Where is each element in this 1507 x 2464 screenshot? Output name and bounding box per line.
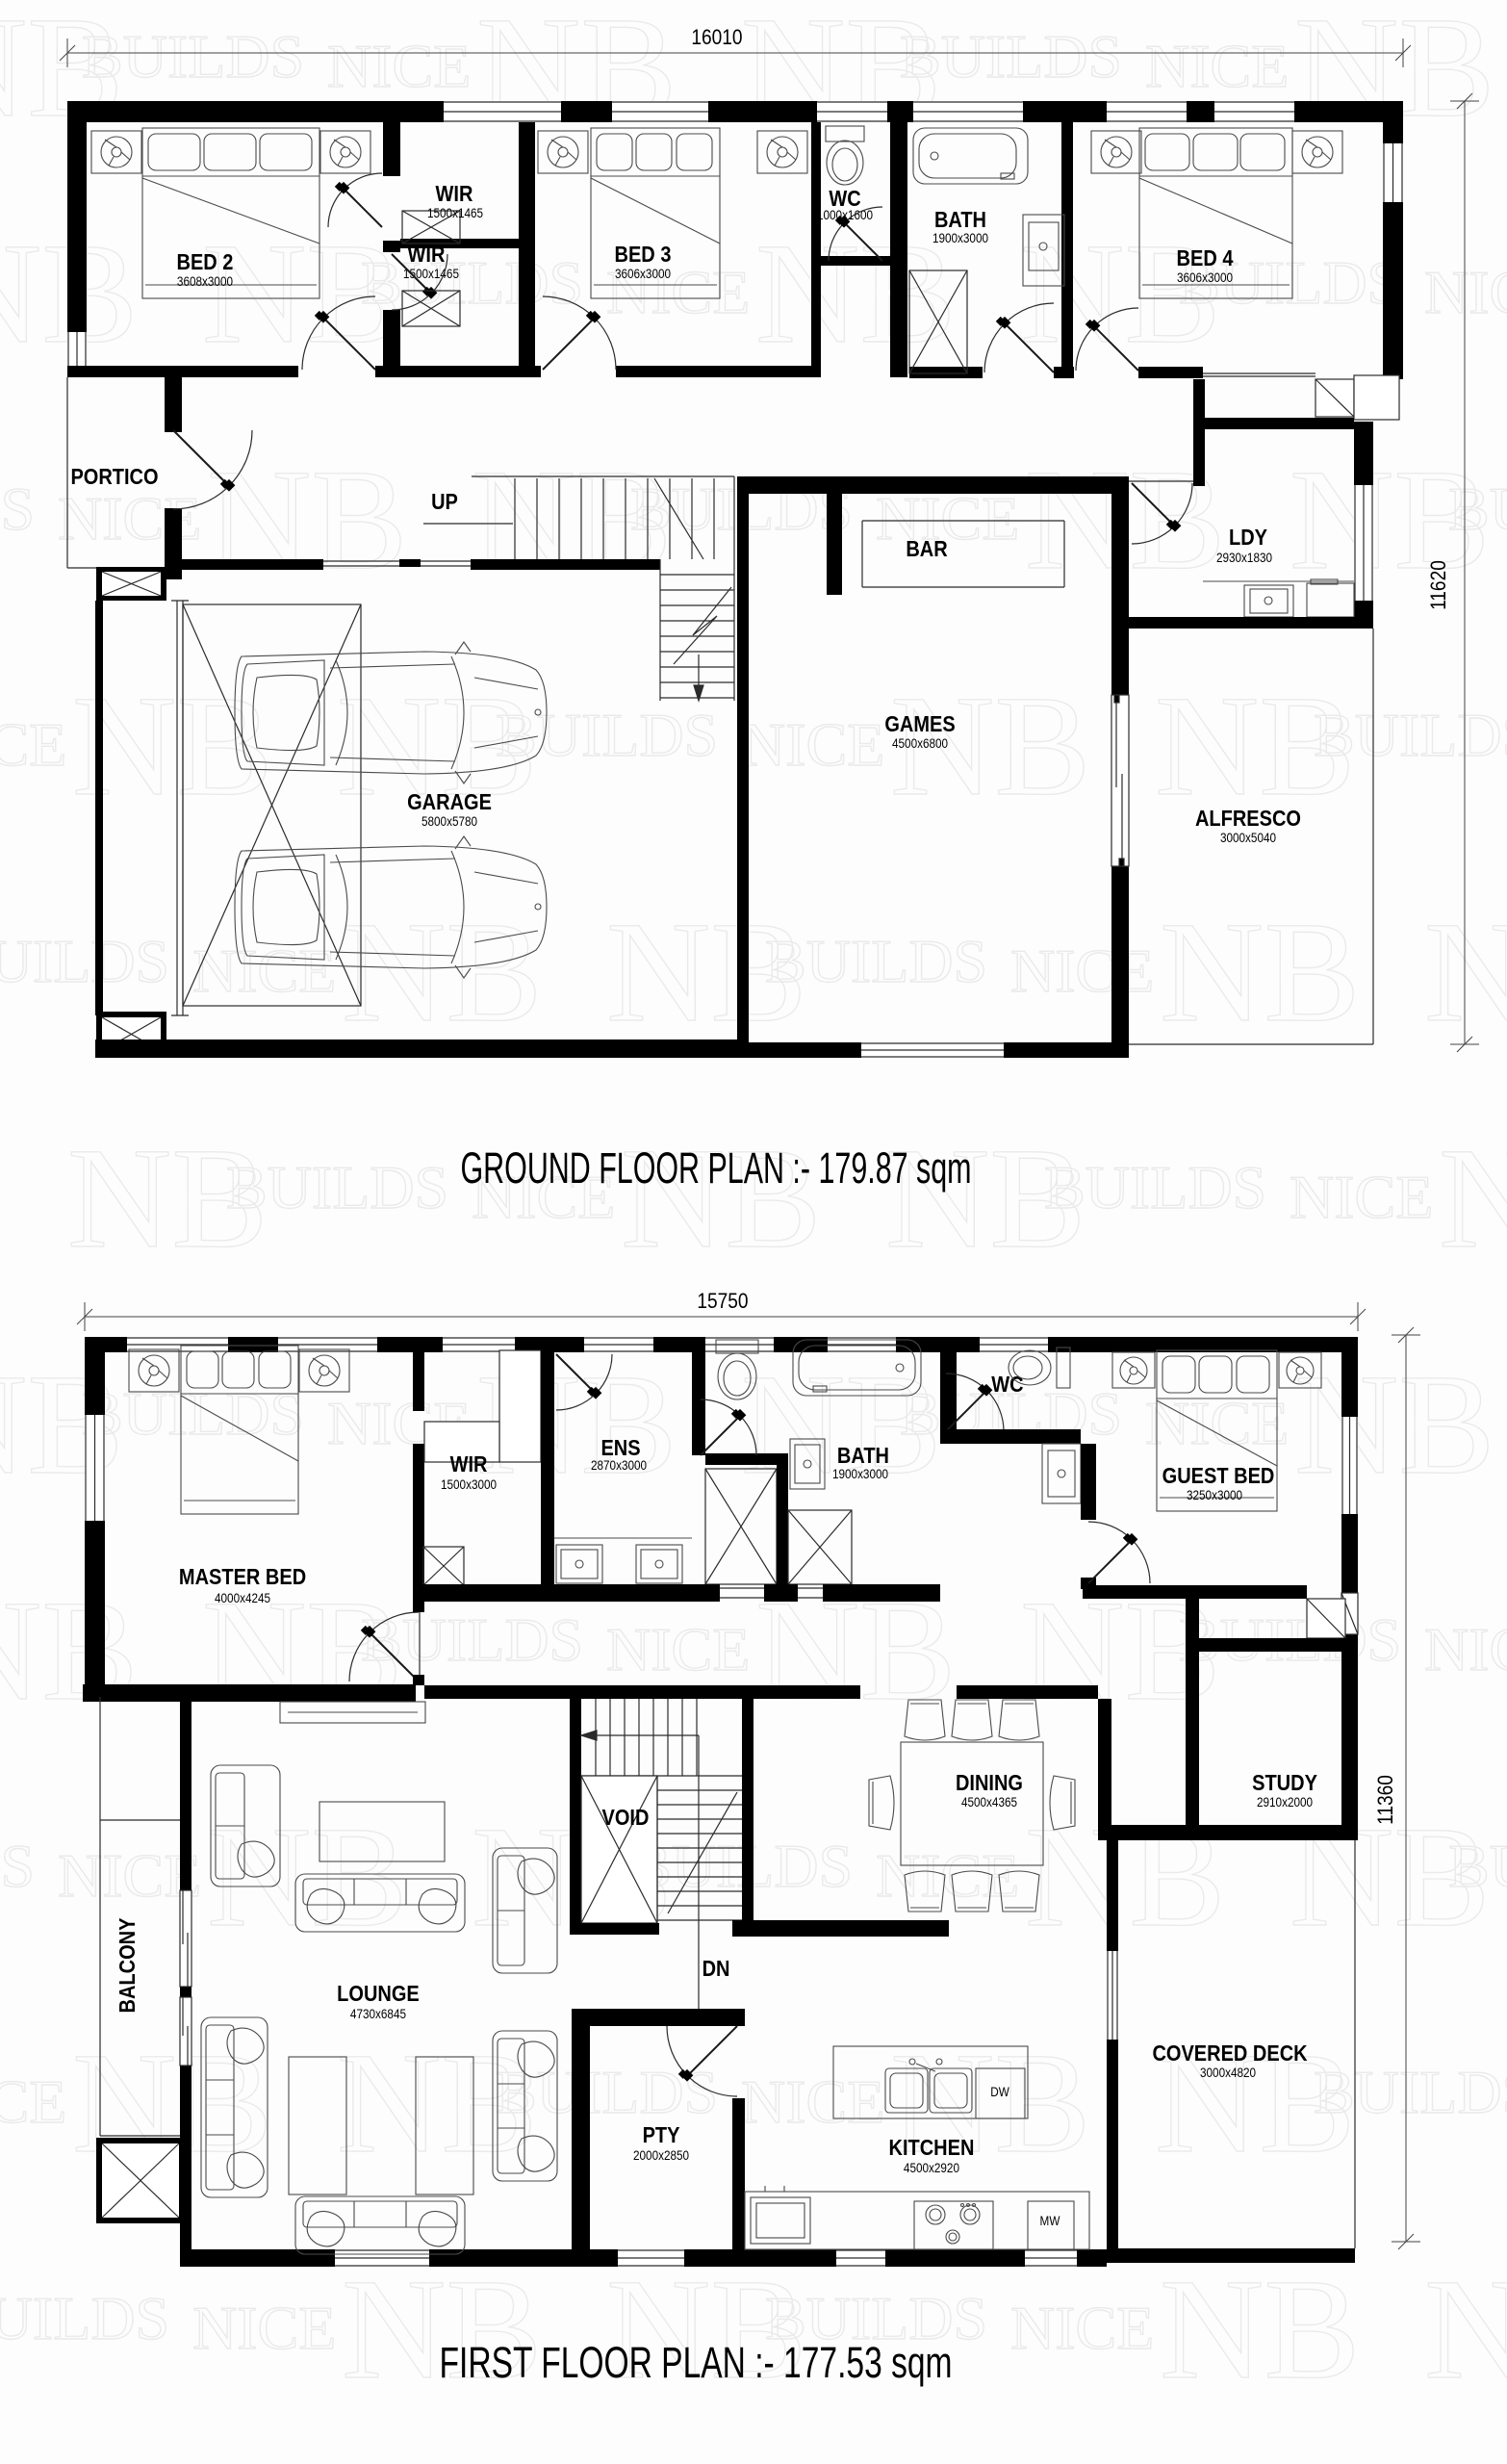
svg-text:3608x3000: 3608x3000 (177, 274, 233, 289)
svg-text:WIR: WIR (450, 1451, 488, 1477)
svg-text:WC: WC (991, 1372, 1023, 1398)
svg-text:3000x5040: 3000x5040 (1220, 831, 1276, 845)
svg-text:BALCONY: BALCONY (115, 1917, 140, 2013)
svg-text:NICE: NICE (327, 32, 471, 100)
svg-text:BUILDS: BUILDS (1448, 1832, 1507, 1900)
svg-text:NICE: NICE (192, 937, 336, 1005)
svg-text:1900x3000: 1900x3000 (932, 231, 988, 245)
svg-text:BUILDS: BUILDS (0, 475, 35, 543)
svg-text:NICE: NICE (1145, 1389, 1289, 1457)
svg-text:11620: 11620 (1427, 560, 1451, 610)
svg-text:BUILDS: BUILDS (226, 1153, 448, 1221)
svg-text:NB: NB (621, 1118, 821, 1278)
svg-text:MASTER BED: MASTER BED (179, 1564, 306, 1590)
svg-text:MW: MW (1040, 2214, 1060, 2228)
svg-text:NB: NB (207, 1797, 407, 1957)
svg-text:BUILDS: BUILDS (82, 22, 304, 90)
svg-text:2870x3000: 2870x3000 (591, 1458, 647, 1473)
svg-text:4730x6845: 4730x6845 (350, 2007, 406, 2021)
svg-text:NB: NB (1424, 2249, 1507, 2409)
svg-text:3000x4820: 3000x4820 (1200, 2066, 1256, 2080)
svg-text:BUILDS: BUILDS (1314, 2058, 1507, 2126)
svg-text:11360: 11360 (1374, 1775, 1398, 1825)
svg-text:BUILDS: BUILDS (0, 2284, 169, 2352)
svg-text:BUILDS: BUILDS (765, 927, 987, 995)
svg-text:NICE: NICE (192, 2294, 336, 2362)
svg-text:1500x1465: 1500x1465 (427, 206, 483, 220)
svg-text:NB: NB (1439, 1118, 1507, 1278)
svg-text:3606x3000: 3606x3000 (615, 267, 671, 281)
svg-text:GAMES: GAMES (884, 711, 955, 737)
svg-text:NB: NB (1160, 892, 1360, 1052)
svg-text:NICE: NICE (1010, 937, 1154, 1005)
svg-text:1500x3000: 1500x3000 (441, 1477, 497, 1492)
svg-text:KITCHEN: KITCHEN (889, 2135, 975, 2161)
svg-text:3606x3000: 3606x3000 (1177, 270, 1233, 285)
svg-text:LOUNGE: LOUNGE (337, 1981, 420, 2007)
svg-text:NICE: NICE (1290, 1163, 1433, 1231)
svg-text:BUILDS: BUILDS (900, 22, 1122, 90)
svg-text:BUILDS: BUILDS (1044, 1153, 1266, 1221)
svg-text:2910x2000: 2910x2000 (1257, 1795, 1313, 1809)
svg-text:BUILDS: BUILDS (1448, 475, 1507, 543)
svg-text:4500x2920: 4500x2920 (904, 2161, 959, 2175)
svg-text:2930x1830: 2930x1830 (1216, 551, 1272, 565)
svg-text:DW: DW (990, 2085, 1009, 2099)
svg-text:BUILDS: BUILDS (496, 2058, 718, 2126)
svg-text:FIRST FLOOR PLAN :- 177.53 sqm: FIRST FLOOR PLAN :- 177.53 sqm (440, 2338, 953, 2387)
svg-text:NICE: NICE (0, 2067, 66, 2136)
svg-text:NICE: NICE (1010, 2294, 1154, 2362)
svg-text:BATH: BATH (837, 1443, 889, 1469)
svg-text:GUEST BED: GUEST BED (1162, 1463, 1275, 1489)
svg-text:5800x5780: 5800x5780 (421, 814, 477, 829)
svg-text:BUILDS: BUILDS (1314, 701, 1507, 769)
svg-text:BED 4: BED 4 (1177, 245, 1234, 271)
svg-text:NB: NB (0, 1118, 3, 1278)
svg-text:1900x3000: 1900x3000 (832, 1467, 888, 1481)
svg-text:BUILDS: BUILDS (361, 248, 583, 317)
svg-text:2000x2850: 2000x2850 (633, 2148, 689, 2163)
svg-text:BUILDS: BUILDS (630, 1832, 853, 1900)
svg-text:4500x4365: 4500x4365 (961, 1795, 1017, 1809)
svg-text:STUDY: STUDY (1252, 1770, 1317, 1796)
svg-text:4500x6800: 4500x6800 (892, 736, 948, 751)
svg-text:BUILDS: BUILDS (82, 1379, 304, 1448)
svg-text:BED 2: BED 2 (177, 249, 234, 275)
svg-text:BAR: BAR (906, 536, 948, 562)
svg-text:15750: 15750 (697, 1290, 748, 1314)
svg-text:NICE: NICE (1424, 1615, 1507, 1683)
svg-text:NB: NB (476, 0, 677, 147)
svg-text:NB: NB (0, 1571, 138, 1731)
svg-text:NICE: NICE (876, 1841, 1019, 1910)
svg-text:16010: 16010 (691, 26, 742, 50)
svg-text:PORTICO: PORTICO (70, 464, 158, 490)
svg-text:NICE: NICE (0, 710, 66, 779)
svg-text:ALFRESCO: ALFRESCO (1195, 806, 1301, 832)
svg-text:LDY: LDY (1229, 525, 1268, 551)
svg-text:UP: UP (431, 489, 458, 515)
svg-text:NICE: NICE (741, 2067, 884, 2136)
svg-text:NB: NB (755, 214, 956, 373)
svg-text:BED 3: BED 3 (615, 242, 672, 268)
svg-text:NICE: NICE (1145, 32, 1289, 100)
svg-text:3250x3000: 3250x3000 (1187, 1488, 1242, 1502)
svg-text:BUILDS: BUILDS (0, 927, 169, 995)
svg-text:PTY: PTY (643, 2122, 680, 2148)
svg-text:NB: NB (207, 440, 407, 600)
svg-text:WIR: WIR (408, 242, 446, 268)
svg-text:NB: NB (1160, 2249, 1360, 2409)
svg-text:NB: NB (1424, 892, 1507, 1052)
svg-text:BUILDS: BUILDS (361, 1605, 583, 1674)
svg-text:4000x4245: 4000x4245 (215, 1591, 270, 1605)
svg-text:DN: DN (702, 1956, 730, 1982)
svg-text:BATH: BATH (934, 207, 986, 233)
svg-text:NICE: NICE (1424, 258, 1507, 326)
svg-text:NICE: NICE (741, 710, 884, 779)
svg-text:VOID: VOID (602, 1805, 650, 1831)
svg-text:DINING: DINING (956, 1770, 1023, 1796)
svg-text:NB: NB (1294, 1345, 1494, 1504)
svg-text:BUILDS: BUILDS (0, 1832, 35, 1900)
svg-text:WIR: WIR (436, 181, 473, 207)
svg-text:NB: NB (342, 892, 542, 1052)
svg-text:GROUND FLOOR PLAN :- 179.87 sq: GROUND FLOOR PLAN :- 179.87 sqm (461, 1143, 972, 1193)
svg-text:NICE: NICE (606, 1615, 750, 1683)
svg-text:GARAGE: GARAGE (407, 789, 492, 815)
svg-text:COVERED DECK: COVERED DECK (1152, 2040, 1308, 2066)
svg-text:ENS: ENS (600, 1435, 640, 1461)
